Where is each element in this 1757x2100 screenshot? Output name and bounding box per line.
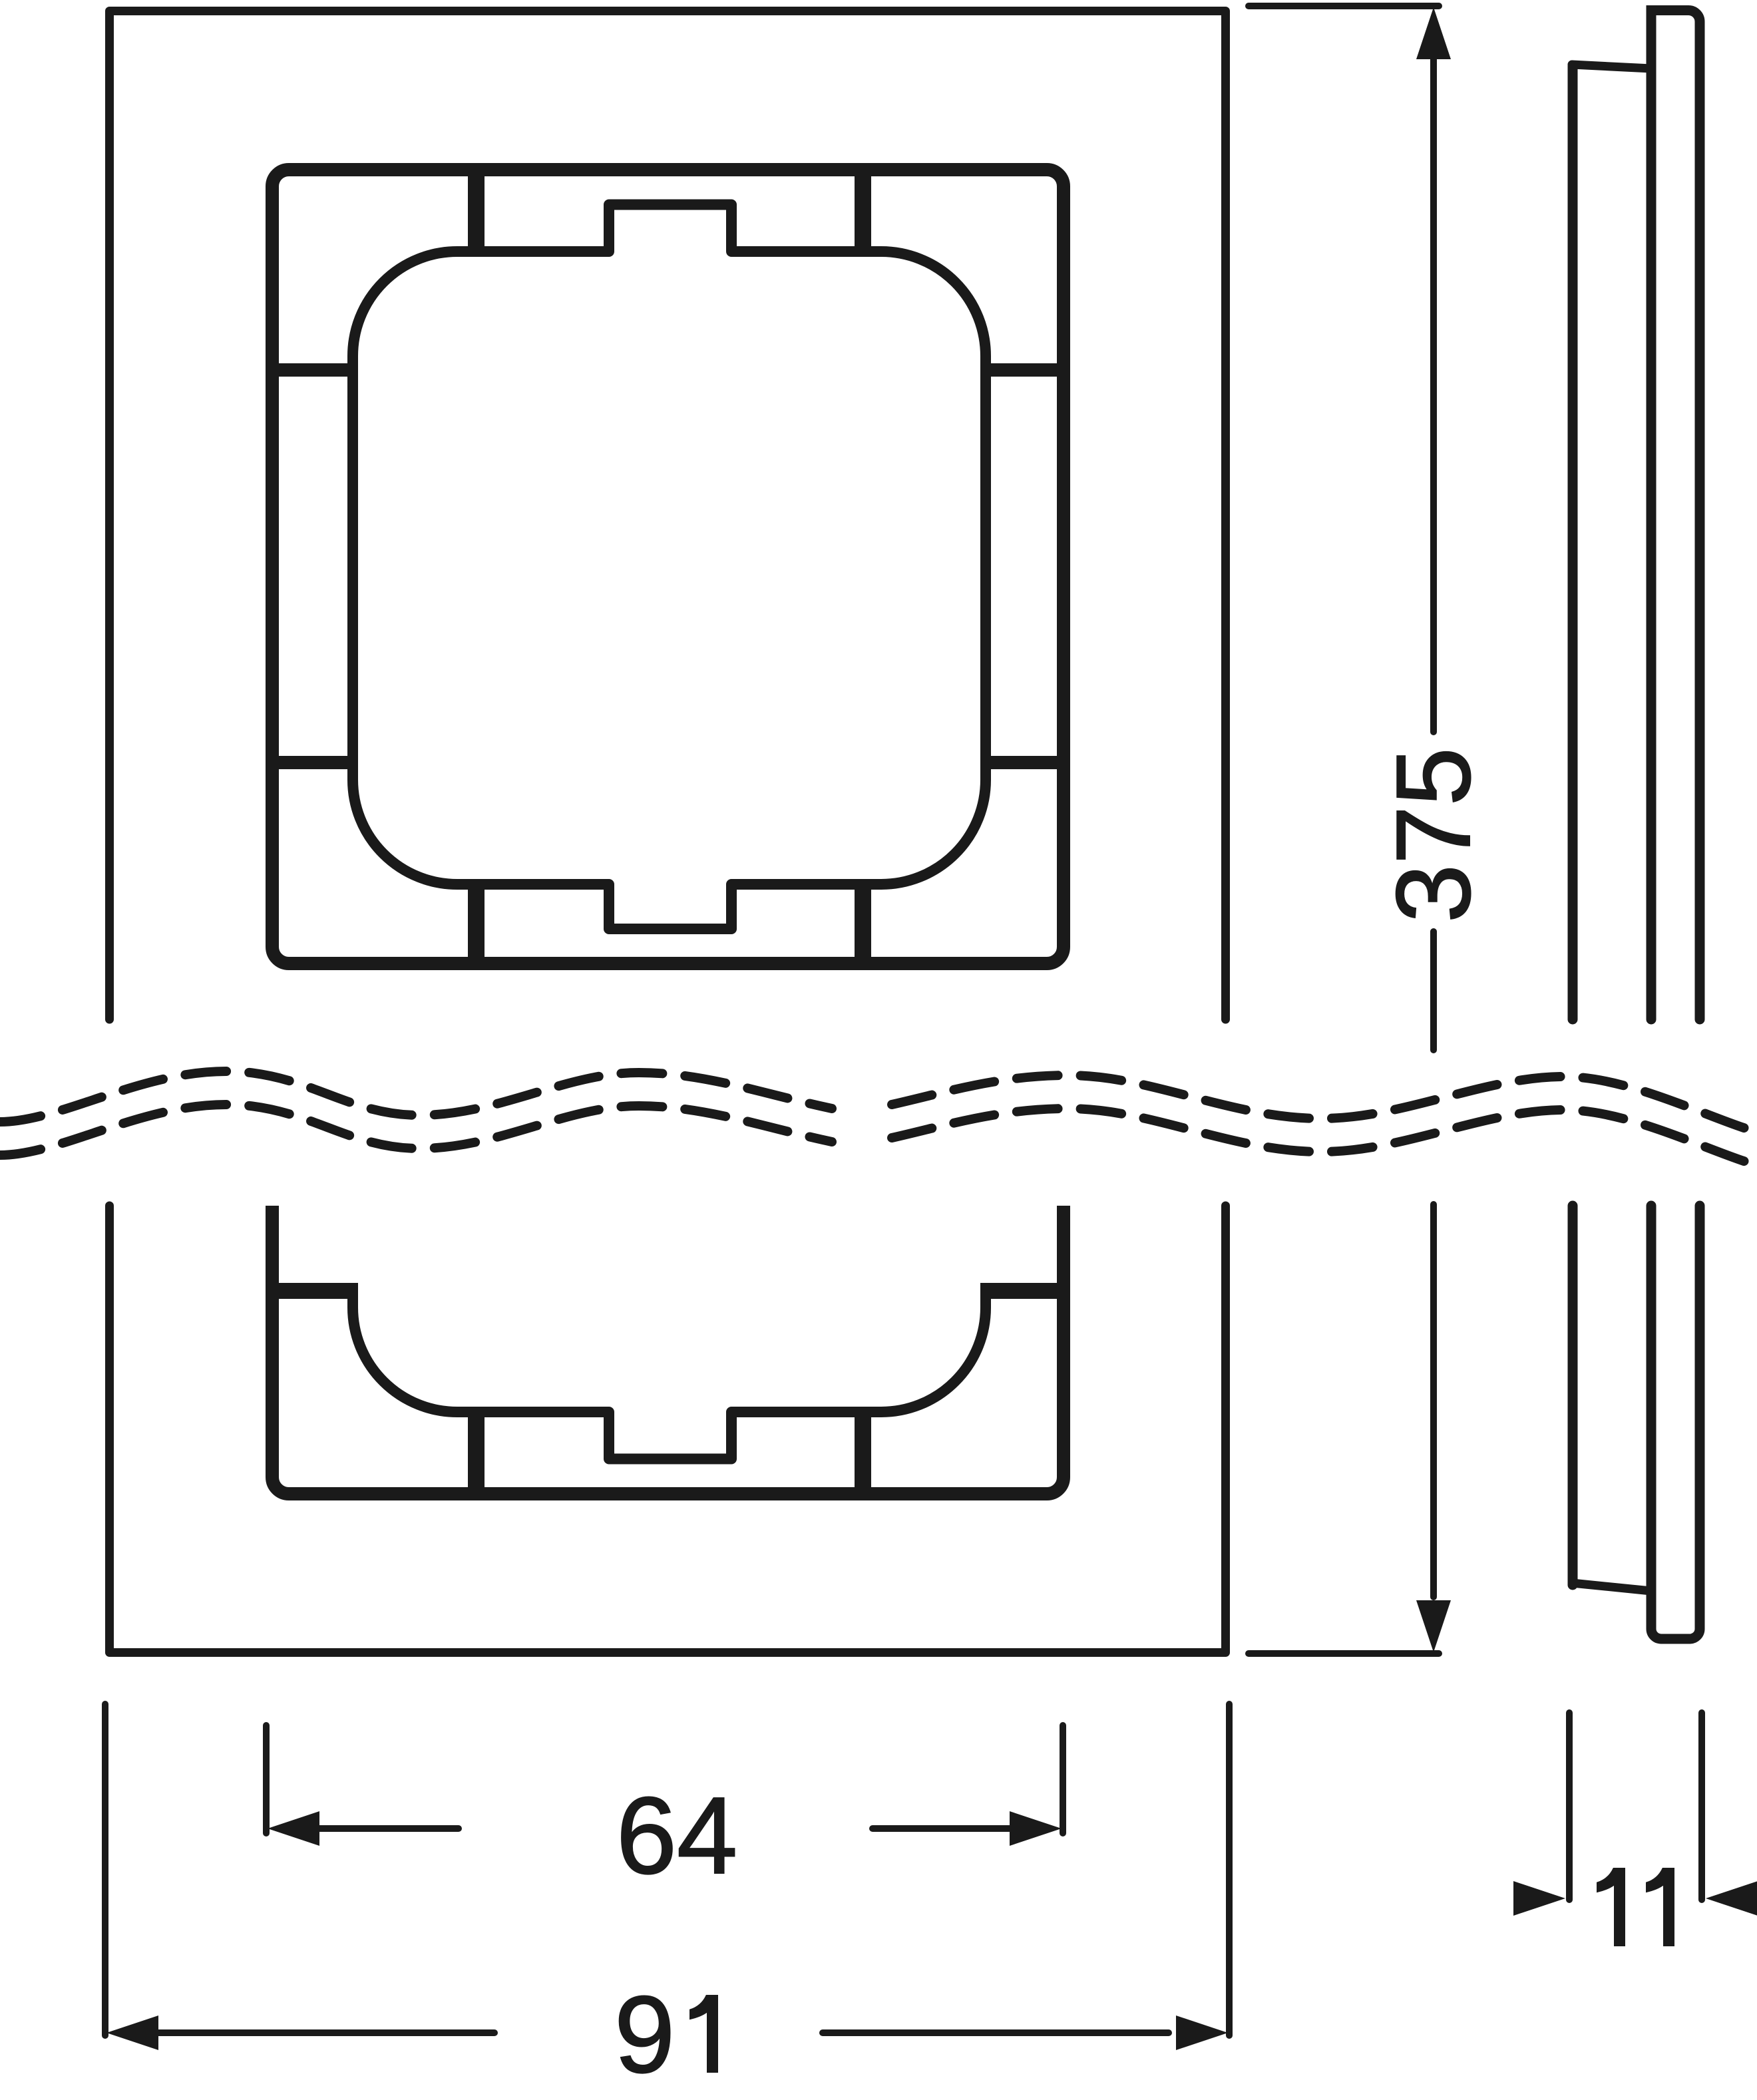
svg-text:9: 9 — [614, 1974, 675, 2095]
svg-text:64: 64 — [616, 1775, 737, 1896]
svg-text:375: 375 — [1375, 747, 1492, 923]
